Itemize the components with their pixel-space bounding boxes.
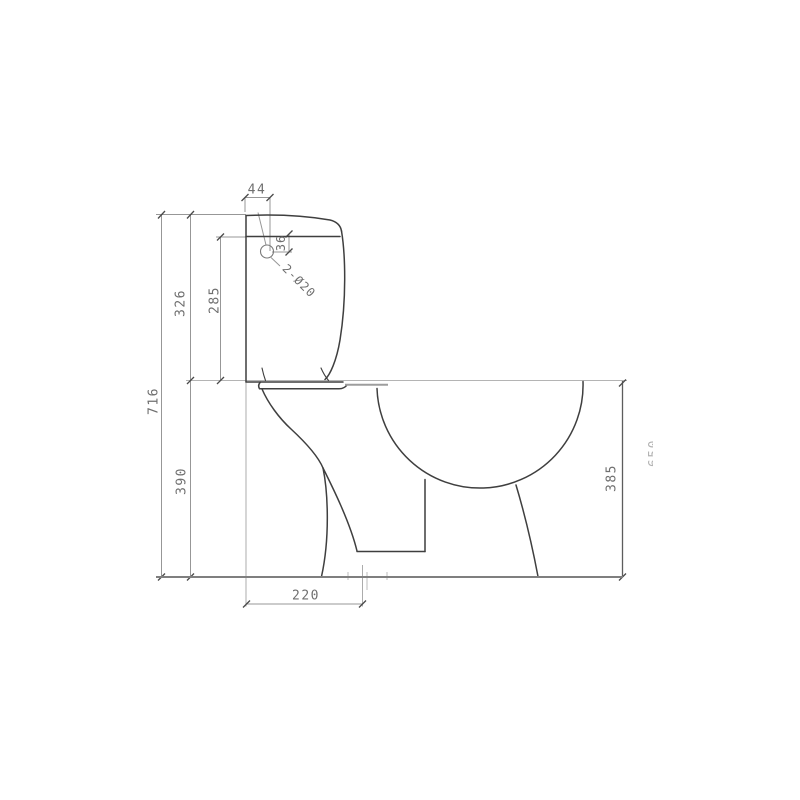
pedestal-front-leg bbox=[322, 468, 328, 577]
bowl-interior-arc bbox=[377, 382, 583, 489]
dim-label-tank-height: 326 bbox=[174, 289, 189, 317]
dim-label-trap-setback: 220 bbox=[292, 589, 320, 604]
tank-base-right-curve bbox=[321, 368, 329, 381]
dim-label-hole-offset-x: 44 bbox=[248, 183, 267, 198]
toilet-elevation-drawing bbox=[0, 0, 800, 800]
inlet-hole-circle bbox=[261, 245, 274, 258]
bowl-front-profile bbox=[262, 389, 323, 468]
faint-partial-dimension: 650 bbox=[647, 430, 653, 478]
faint-partial-dimension-text: 650 bbox=[647, 430, 653, 476]
dimension-arrow-ticks bbox=[158, 194, 626, 608]
dimension-lines bbox=[156, 198, 627, 607]
dim-label-hole-offset-y: 36 bbox=[274, 235, 288, 251]
pedestal-back-leg bbox=[516, 485, 538, 577]
seat-front-lip bbox=[259, 382, 347, 389]
dim-label-tank-body-height: 285 bbox=[208, 286, 223, 314]
dim-label-overall-height: 716 bbox=[147, 387, 162, 415]
dim-label-bowl-rear-height: 385 bbox=[605, 464, 620, 492]
technical-drawing-canvas: 716 326 285 390 385 44 36 220 2-Ø20 650 bbox=[0, 0, 800, 800]
dim-label-bowl-front-height: 390 bbox=[175, 467, 190, 495]
tank-right-edge bbox=[325, 231, 345, 380]
ground-centerline-ticks bbox=[348, 572, 387, 590]
trap-front-curve bbox=[323, 468, 357, 551]
tank-base-left-curve bbox=[262, 368, 266, 381]
